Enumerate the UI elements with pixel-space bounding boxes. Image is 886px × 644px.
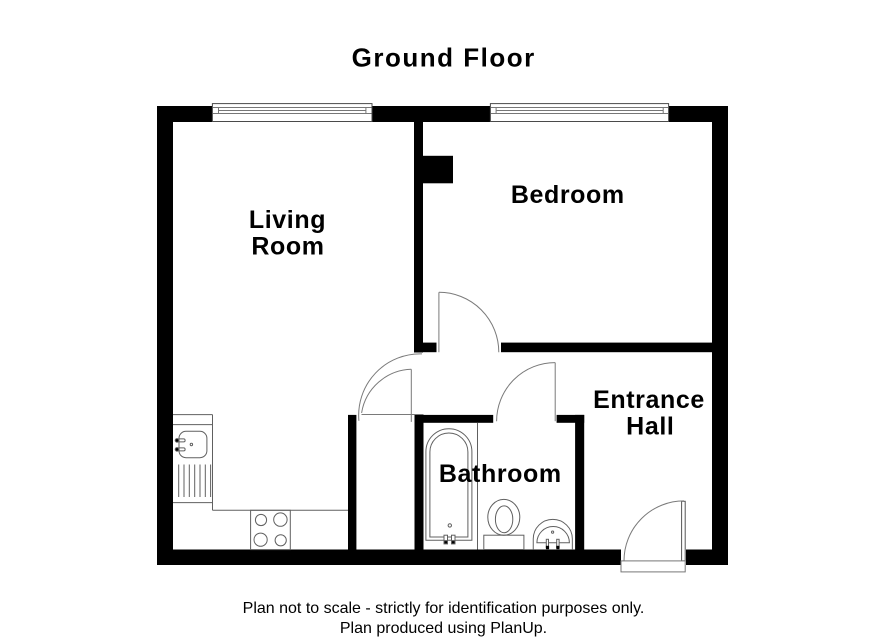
svg-text:Bedroom: Bedroom — [511, 181, 625, 209]
svg-text:Plan produced using PlanUp.: Plan produced using PlanUp. — [340, 620, 547, 637]
svg-text:Room: Room — [251, 233, 324, 261]
svg-text:Plan not to scale - strictly f: Plan not to scale - strictly for identif… — [243, 600, 645, 617]
svg-text:Ground Floor: Ground Floor — [352, 43, 536, 73]
svg-text:Entrance: Entrance — [593, 386, 705, 414]
svg-text:Living: Living — [249, 206, 326, 234]
svg-text:Hall: Hall — [626, 413, 674, 441]
svg-text:Bathroom: Bathroom — [439, 460, 562, 488]
